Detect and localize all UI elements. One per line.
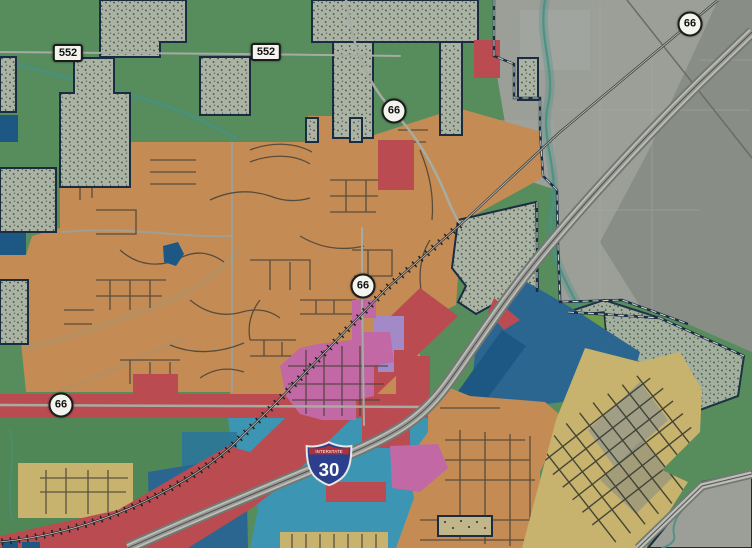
route-shield-66-west: 66 bbox=[49, 393, 74, 418]
route-shield-552-west: 552 bbox=[53, 44, 83, 62]
tone-overlay bbox=[0, 0, 752, 548]
zoning-map-viewport[interactable]: 552 552 66 66 66 66 INTERSTATE 30 bbox=[0, 0, 752, 548]
route-shield-66-north: 66 bbox=[382, 99, 407, 124]
interstate-number: 30 bbox=[319, 459, 340, 480]
route-shield-66-northeast: 66 bbox=[678, 12, 703, 37]
map-canvas bbox=[0, 0, 752, 548]
route-shield-66-center: 66 bbox=[351, 274, 376, 299]
interstate-banner-text: INTERSTATE bbox=[315, 449, 342, 454]
interstate-30-shield: INTERSTATE 30 bbox=[304, 441, 354, 487]
route-shield-552-east: 552 bbox=[251, 43, 281, 61]
